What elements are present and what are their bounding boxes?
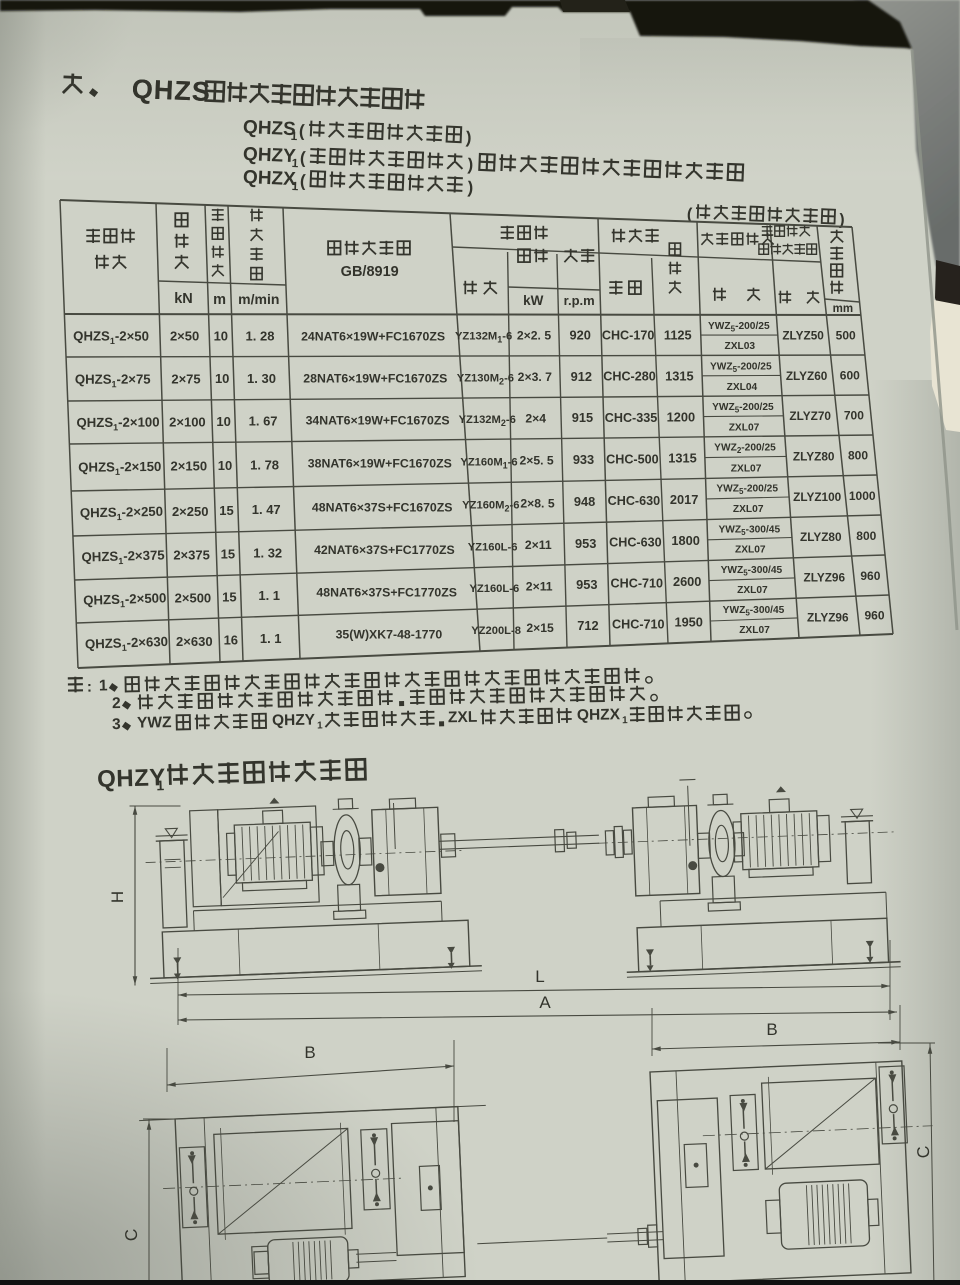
svg-text:948: 948: [574, 494, 595, 509]
svg-text:YZ130M2-6: YZ130M2-6: [457, 372, 514, 386]
svg-text:2×375: 2×375: [173, 548, 210, 563]
svg-text:15: 15: [219, 503, 233, 518]
svg-text:10: 10: [218, 458, 232, 473]
svg-text:m: m: [213, 292, 226, 308]
svg-text:B: B: [304, 1043, 315, 1062]
svg-text:C: C: [122, 1228, 142, 1242]
svg-text:ZXL: ZXL: [448, 709, 478, 727]
svg-text:912: 912: [571, 369, 592, 384]
svg-text:1. 28: 1. 28: [246, 328, 275, 343]
svg-text:48NAT6×37S+FC1670ZS: 48NAT6×37S+FC1670ZS: [312, 500, 453, 514]
svg-text:1315: 1315: [665, 369, 693, 384]
svg-text:1. 47: 1. 47: [252, 502, 281, 517]
svg-text:10: 10: [215, 371, 229, 386]
svg-text:QHZS: QHZS: [243, 117, 297, 140]
svg-text:15: 15: [222, 589, 236, 604]
svg-text:1000: 1000: [849, 489, 876, 503]
svg-text:960: 960: [860, 569, 880, 583]
svg-text:YZ160L-6: YZ160L-6: [469, 583, 519, 595]
svg-text::: :: [87, 679, 92, 696]
svg-text:YWZ5-200/25: YWZ5-200/25: [716, 484, 778, 497]
svg-text:1. 1: 1. 1: [260, 631, 282, 646]
svg-text:): ): [467, 155, 473, 174]
svg-text:1800: 1800: [671, 533, 699, 548]
svg-text:2×3. 7: 2×3. 7: [518, 370, 552, 384]
svg-text:2017: 2017: [670, 492, 698, 507]
svg-text:ZLYZ80: ZLYZ80: [800, 530, 842, 544]
svg-text:712: 712: [577, 618, 598, 633]
svg-text:15: 15: [221, 547, 235, 562]
svg-text:1315: 1315: [668, 451, 696, 466]
svg-text:(: (: [299, 121, 306, 140]
svg-text:600: 600: [840, 369, 860, 383]
svg-text:ZXL07: ZXL07: [731, 463, 762, 474]
svg-text:2×2. 5: 2×2. 5: [517, 329, 551, 343]
svg-text:1: 1: [291, 179, 299, 193]
svg-text:YZ200L-8: YZ200L-8: [471, 625, 521, 637]
svg-text:YZ132M2-6: YZ132M2-6: [459, 414, 516, 428]
svg-text:1: 1: [156, 777, 164, 793]
svg-text:kN: kN: [174, 291, 193, 307]
svg-text:1: 1: [290, 129, 298, 143]
svg-text:CHC-630: CHC-630: [609, 535, 662, 549]
svg-text:CHC-170: CHC-170: [602, 329, 655, 343]
svg-text:10: 10: [216, 414, 230, 429]
svg-text:933: 933: [573, 452, 594, 467]
svg-text:800: 800: [848, 449, 868, 463]
svg-text:42NAT6×37S+FC1770ZS: 42NAT6×37S+FC1770ZS: [314, 543, 455, 557]
svg-text:2×500: 2×500: [175, 591, 212, 606]
svg-text:2: 2: [112, 695, 121, 712]
svg-text:700: 700: [844, 409, 864, 423]
svg-text:ZXL07: ZXL07: [735, 545, 766, 556]
svg-text:YZ160M2-6: YZ160M2-6: [462, 499, 519, 513]
svg-text:920: 920: [570, 328, 591, 343]
svg-text:2×4: 2×4: [525, 412, 546, 426]
svg-text:CHC-710: CHC-710: [612, 617, 665, 631]
svg-text:10: 10: [214, 328, 228, 343]
svg-text:1. 78: 1. 78: [250, 458, 279, 473]
svg-text:H: H: [108, 891, 127, 903]
svg-text:): ): [467, 178, 473, 197]
svg-text:ZLYZ80: ZLYZ80: [793, 449, 835, 463]
svg-text:YWZ: YWZ: [137, 714, 172, 732]
svg-text:C: C: [913, 1145, 933, 1160]
svg-text:500: 500: [836, 329, 856, 343]
svg-text:YWZ5-300/45: YWZ5-300/45: [723, 605, 785, 618]
svg-text:915: 915: [572, 410, 593, 425]
svg-text:1. 30: 1. 30: [247, 371, 276, 386]
svg-text:2600: 2600: [673, 574, 701, 589]
svg-text:1: 1: [99, 677, 108, 694]
svg-text:2×50: 2×50: [170, 328, 199, 343]
svg-text:1125: 1125: [664, 328, 692, 343]
svg-text:(: (: [300, 171, 307, 190]
svg-text:QHZY: QHZY: [272, 712, 316, 730]
svg-text:ZXL07: ZXL07: [739, 625, 770, 636]
svg-text:1: 1: [317, 720, 323, 731]
svg-text:953: 953: [576, 577, 597, 592]
svg-text:2×150: 2×150: [171, 459, 208, 474]
svg-text:ZXL07: ZXL07: [733, 504, 764, 515]
svg-text:YWZ5-200/25: YWZ5-200/25: [712, 402, 774, 415]
svg-text:CHC-710: CHC-710: [611, 577, 664, 591]
svg-text:YWZ5-300/45: YWZ5-300/45: [721, 565, 783, 578]
svg-text:2×250: 2×250: [172, 504, 209, 519]
svg-text:mm: mm: [833, 303, 853, 315]
svg-text:YZ132M1-6: YZ132M1-6: [455, 331, 512, 345]
svg-text:QHZS: QHZS: [131, 74, 211, 107]
svg-text:2×15: 2×15: [526, 621, 554, 635]
svg-text:28NAT6×19W+FC1670ZS: 28NAT6×19W+FC1670ZS: [303, 372, 447, 386]
svg-text:YZ160M1-6: YZ160M1-6: [460, 457, 517, 471]
svg-text:ZLYZ100: ZLYZ100: [793, 490, 842, 504]
svg-text:ZXL03: ZXL03: [725, 341, 756, 352]
svg-text:QHZX: QHZX: [243, 167, 297, 190]
svg-text:ZLYZ96: ZLYZ96: [804, 571, 846, 585]
svg-text:ZXL07: ZXL07: [729, 422, 760, 433]
svg-text:YWZ5-200/25: YWZ5-200/25: [708, 321, 770, 334]
svg-text:2×75: 2×75: [171, 371, 200, 386]
svg-text:CHC-280: CHC-280: [603, 370, 656, 384]
svg-text:CHC-500: CHC-500: [606, 452, 659, 466]
svg-text:L: L: [535, 967, 544, 986]
svg-text:B: B: [766, 1020, 777, 1039]
svg-text:1950: 1950: [674, 614, 702, 629]
svg-text:1. 32: 1. 32: [253, 545, 282, 560]
svg-text:1: 1: [622, 715, 628, 726]
svg-text:1. 1: 1. 1: [258, 588, 280, 603]
svg-text:3: 3: [112, 716, 121, 733]
svg-text:2×100: 2×100: [169, 414, 206, 429]
svg-text:48NAT6×37S+FC1770ZS: 48NAT6×37S+FC1770ZS: [316, 585, 457, 599]
svg-text:ZLYZ70: ZLYZ70: [789, 409, 831, 423]
svg-text:1. 67: 1. 67: [249, 414, 278, 429]
svg-text:YWZ2-200/25: YWZ2-200/25: [714, 443, 776, 456]
svg-text:CHC-630: CHC-630: [608, 494, 661, 508]
svg-text:ZXL04: ZXL04: [727, 382, 758, 393]
svg-text:QHZY: QHZY: [243, 144, 297, 167]
svg-text:A: A: [539, 993, 551, 1012]
svg-text:CHC-335: CHC-335: [605, 411, 658, 425]
svg-text:1200: 1200: [667, 409, 695, 424]
svg-text:kW: kW: [523, 293, 544, 308]
svg-text:2×5. 5: 2×5. 5: [519, 454, 553, 468]
svg-text:2×8. 5: 2×8. 5: [520, 496, 554, 510]
svg-text:35(W)XK7-48-1770: 35(W)XK7-48-1770: [336, 628, 443, 642]
svg-text:YZ160L-6: YZ160L-6: [468, 542, 518, 554]
svg-text:960: 960: [864, 609, 884, 623]
svg-text:r.p.m: r.p.m: [564, 293, 595, 308]
svg-text:38NAT6×19W+FC1670ZS: 38NAT6×19W+FC1670ZS: [308, 457, 452, 471]
svg-text:m/min: m/min: [238, 291, 279, 307]
svg-text:ZLYZ96: ZLYZ96: [807, 610, 849, 624]
svg-text:ZXL07: ZXL07: [737, 585, 768, 596]
svg-text:QHZX: QHZX: [577, 706, 621, 724]
svg-text:ZLYZ50: ZLYZ50: [782, 329, 824, 343]
svg-text:953: 953: [575, 536, 596, 551]
svg-text:2×11: 2×11: [526, 580, 553, 594]
svg-text:YWZ5-300/45: YWZ5-300/45: [718, 524, 780, 537]
svg-text:(: (: [300, 148, 307, 167]
svg-text:34NAT6×19W+FC1670ZS: 34NAT6×19W+FC1670ZS: [306, 414, 450, 428]
svg-text:): ): [465, 128, 471, 147]
svg-text:ZLYZ60: ZLYZ60: [786, 369, 828, 383]
svg-text:GB/8919: GB/8919: [341, 264, 399, 280]
svg-text:2×11: 2×11: [525, 538, 552, 552]
svg-text:800: 800: [856, 529, 876, 543]
svg-text:16: 16: [224, 633, 238, 648]
svg-text:YWZ5-200/25: YWZ5-200/25: [710, 362, 772, 375]
svg-text:24NAT6×19W+FC1670ZS: 24NAT6×19W+FC1670ZS: [301, 329, 445, 343]
svg-text:2×630: 2×630: [176, 634, 213, 649]
